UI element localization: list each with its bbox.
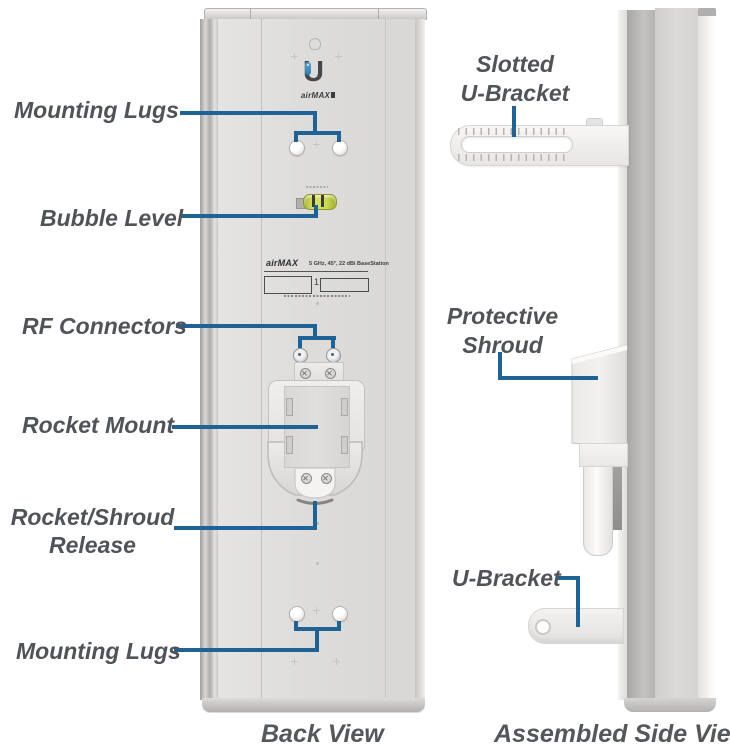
rocket-shroud-release-plate [265,440,365,508]
leader-mounting-lugs-top [180,111,317,115]
callout-line: Shroud [462,332,543,358]
screw-icon [321,473,332,484]
callout-u-bracket: U-Bracket [452,565,561,591]
shroud-lower-lip [579,443,628,467]
ubiquiti-logo-accent-dot [307,64,309,66]
slotted-u-bracket-slot [461,136,573,153]
ubiquiti-logo: U [303,56,333,92]
callout-bubble-level: Bubble Level [40,205,183,231]
sticker-rule [264,271,368,272]
caption-back-view: Back View [261,720,384,749]
alignment-mark-icon [309,38,321,50]
back-panel-top-cap-seam [378,9,379,19]
callout-line: Release [49,532,136,558]
leader-bubble-level [314,205,318,218]
sticker-footer-microtext [284,295,350,297]
sticker-units-digit: 1 [314,277,319,287]
leader-mounting-lugs-top [337,131,341,142]
airmax-logo-text: airMAX [301,91,330,100]
leader-rf-connectors [331,336,335,348]
leader-rocket-mount [172,425,318,429]
rocket-mount-clip [341,398,348,416]
leader-mounting-lugs-bottom [174,648,319,652]
callout-line: Protective [447,303,558,329]
callout-rocket-mount: Rocket Mount [22,412,174,438]
side-panel-face [655,8,698,700]
leader-rocket-shroud-release [313,501,317,530]
sticker-barcode-box [320,278,369,292]
plus-mark-icon [291,658,298,665]
leader-bubble-level [182,214,318,218]
side-panel-gray-strip [627,10,655,700]
airmax-logo-mark [331,92,335,98]
leader-u-bracket [576,576,580,627]
plus-mark-icon [313,607,320,614]
mounting-lug [332,606,348,622]
callout-rocket-shroud-release: Rocket/Shroud Release [5,503,180,559]
side-panel [618,8,716,712]
screw-icon [301,473,312,484]
callout-mounting-lugs-top: Mounting Lugs [14,97,179,123]
callout-slotted-u-bracket: Slotted U-Bracket [440,50,590,108]
bubble-level-band [321,195,324,207]
leader-rf-connectors [176,324,317,328]
back-panel-seam [385,19,386,700]
bubble-level-microtext [306,186,328,188]
sticker-spec: 5 GHz, 45°, 22 dBi BaseStation [309,261,389,267]
plus-mark-icon [291,53,298,60]
rocket-mount-clip [286,398,293,416]
mounting-lug [332,140,348,156]
rf-connector [293,348,308,363]
panel-dot [316,302,319,305]
side-panel-top-tab [698,8,716,16]
callout-line: U-Bracket [461,80,570,106]
leader-rf-connectors [298,336,302,348]
leader-mounting-lugs-top [294,131,298,142]
callout-protective-shroud: Protective Shroud [425,302,580,360]
leader-slotted-u-bracket [512,106,516,137]
callout-line: Slotted [476,51,554,77]
callout-line: Rocket/Shroud [11,504,175,530]
screw-icon [300,368,311,379]
airmax-logo: airMAX [296,91,340,100]
leader-mounting-lugs-top [294,131,341,135]
panel-dot [316,562,319,565]
sticker-barcode-box [264,276,312,294]
antenna-diagram: U airMAX airMAX 5 GHz, 45°, 22 dBi BaseS… [0,0,730,749]
sticker-brand: airMAX [266,258,298,268]
back-panel-left-edge [200,19,218,700]
caption-assembled-side-view: Assembled Side View [494,720,730,749]
callout-mounting-lugs-bottom: Mounting Lugs [16,638,181,664]
plus-mark-icon [335,53,342,60]
plus-mark-icon [333,658,340,665]
callout-rf-connectors: RF Connectors [22,313,187,339]
plus-mark-icon [313,141,320,148]
leader-rocket-shroud-release [174,526,317,530]
side-panel-bottom-cap [624,698,716,712]
rf-connector [326,348,341,363]
back-panel-right-edge [415,19,425,700]
side-panel-right-edge [698,8,716,700]
screw-icon [325,368,336,379]
slotted-u-bracket-ticks [458,154,566,161]
spec-sticker: airMAX 5 GHz, 45°, 22 dBi BaseStation 1 [262,256,370,300]
mounting-lug [289,606,305,622]
u-bracket-hole [535,619,551,635]
back-panel-top-cap-seam [250,9,251,19]
back-panel-seam [261,19,262,700]
leader-protective-shroud [498,376,598,380]
back-panel-bottom-cap [202,698,425,712]
bubble-level-vial [303,194,337,210]
mounting-lug [289,140,305,156]
